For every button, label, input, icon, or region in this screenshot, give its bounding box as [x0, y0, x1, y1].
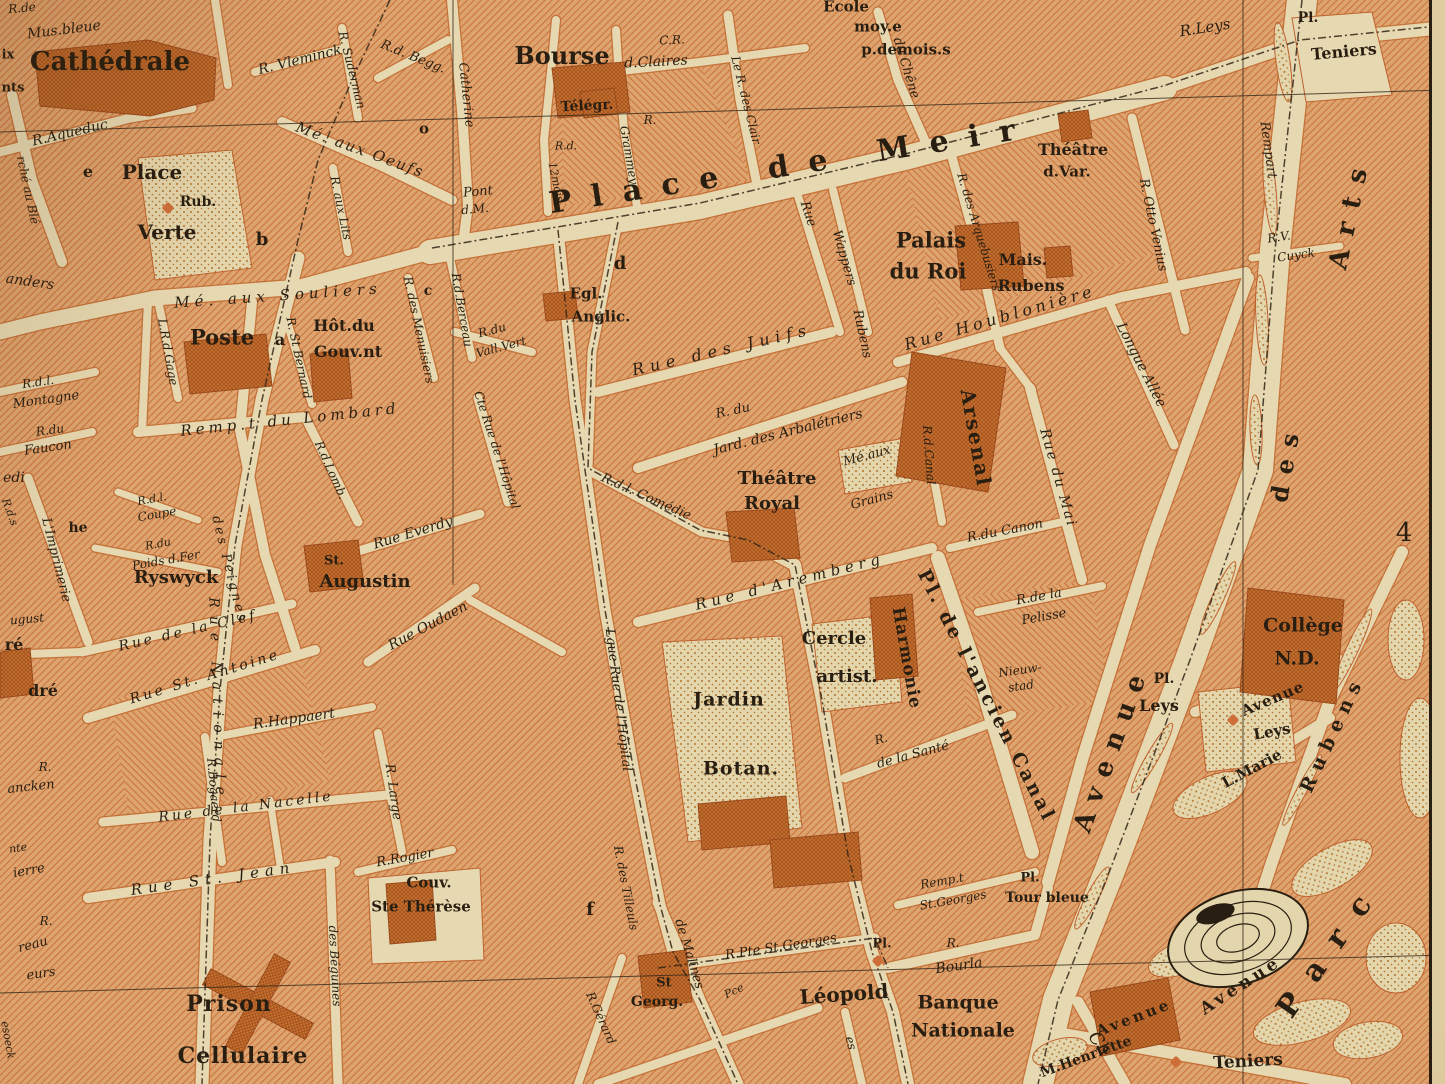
map-label: Bourse — [514, 44, 609, 68]
map-label: Verte — [138, 222, 197, 242]
map-label: R.de — [8, 1, 37, 15]
map-label: Le R. des Clair — [729, 55, 762, 145]
map-label: R.du — [35, 422, 65, 438]
map-label: R.d.Lomb. — [313, 439, 349, 501]
map-label: R. — [40, 915, 53, 927]
map-label: Avenue — [1197, 954, 1284, 1019]
landmark-dot — [1170, 1056, 1183, 1069]
map-label: R.V. — [1267, 229, 1292, 244]
map-label: a — [275, 332, 285, 348]
map-label: Wappers — [830, 229, 858, 288]
map-label: dré — [28, 683, 58, 699]
map-label: R.Aqueduc — [31, 117, 109, 148]
map-label: Jardin — [693, 691, 765, 710]
map-label: Banque — [917, 994, 998, 1013]
map-label: Leys — [1139, 698, 1179, 714]
map-label: Rue des Juifs — [631, 322, 814, 379]
map-label: Remp.t — [919, 871, 964, 890]
map-label: Cuyck — [1277, 246, 1316, 263]
map-label: he — [68, 521, 87, 535]
map-label: Ste Thérèse — [371, 900, 471, 915]
map-label: Gouv.nt — [314, 344, 382, 360]
map-label: Avenue — [1095, 997, 1174, 1039]
map-label: L.Marie — [1220, 747, 1285, 791]
map-label: ix — [2, 49, 15, 62]
map-label: R. St Bernard — [284, 316, 313, 400]
map-label: Hôt.du — [313, 318, 375, 334]
map-label: R. — [39, 761, 52, 773]
map-label: Couv. — [406, 876, 451, 891]
map-label: Mé.aux — [842, 443, 892, 468]
map-label: Grains — [849, 488, 894, 512]
map-label: R.d.s — [0, 497, 20, 527]
map-label: Avenue — [1069, 660, 1154, 835]
map-label: edi — [3, 471, 25, 485]
map-label: Coupe — [137, 505, 177, 524]
map-label: Augustin — [319, 573, 410, 591]
map-label: Ryswyck — [134, 569, 219, 587]
map-label: ancken — [7, 778, 55, 796]
map-label: R. Vleminck — [257, 43, 343, 77]
map-label: Pl. — [1298, 11, 1319, 25]
map-label: R. Suderman — [337, 30, 368, 110]
map-label: es — [843, 1035, 858, 1051]
map-label: e — [83, 164, 93, 180]
map-label: R.du Canon — [966, 517, 1044, 544]
map-label: Pelisse — [1021, 607, 1068, 628]
map-label: Léopold — [799, 981, 889, 1007]
map-label: d.Var. — [1043, 165, 1090, 180]
map-label: moy.e — [854, 20, 902, 35]
map-label: Lgue Rue de l'Hôpital — [603, 628, 633, 772]
map-label: nte — [8, 841, 27, 854]
landmark-dot — [162, 202, 175, 215]
map-label: Rue d'Aremberg — [694, 551, 887, 613]
map-label: Cte Rue de l'Hôpital — [472, 389, 522, 510]
map-label: R.du — [477, 321, 507, 340]
map-label: des Béguines — [327, 925, 343, 1006]
map-label: St — [656, 977, 671, 990]
map-label: Cathédrale — [30, 49, 190, 75]
map-label: R.d.Canal — [921, 425, 937, 485]
map-label: St.Georges — [919, 888, 988, 912]
map-label: 4 — [1396, 520, 1413, 546]
map-label: R. — [873, 732, 889, 747]
map-label: R.de la — [1015, 587, 1063, 608]
map-label: Pce — [723, 982, 746, 1000]
map-label: Faucon — [23, 438, 72, 458]
map-label: Rue St. Jean — [130, 860, 296, 898]
map-label: du Roi — [890, 261, 967, 282]
map-label: Arsenal — [958, 387, 995, 488]
map-label: Catherine — [456, 62, 476, 128]
map-label: Montagne — [12, 389, 80, 411]
map-label: R. Otto Venius — [1137, 177, 1169, 272]
map-label: R. des Tilleuls — [612, 845, 640, 931]
map-label: Remp.t du Lombard — [180, 401, 400, 439]
map-label: R.d.l. — [137, 491, 168, 507]
map-label: Rub. — [180, 195, 216, 209]
map-label: R.Leys — [1179, 17, 1232, 40]
map-label: Théâtre — [738, 470, 817, 488]
map-label: Tour bleue — [1005, 891, 1089, 905]
map-label: R.d.Berceau — [450, 272, 475, 348]
map-label: o — [419, 122, 429, 137]
map-label: Arts — [1325, 152, 1375, 271]
map-label: anders — [5, 272, 55, 293]
map-label: R.Happaert — [252, 706, 336, 731]
map-label: Place — [122, 162, 183, 182]
map-label: Pl. — [1020, 872, 1039, 885]
map-label: R.du — [144, 536, 171, 551]
map-label: b — [256, 231, 269, 249]
map-label: R.Rogier — [375, 847, 434, 870]
map-label: Palais — [896, 230, 966, 251]
map-label: Avenue — [1239, 679, 1306, 719]
map-label: Rue — [798, 200, 818, 229]
map-label: des — [1267, 420, 1305, 504]
map-label: Théâtre — [1038, 142, 1108, 158]
map-label: Rubens — [1297, 672, 1368, 796]
map-label: Prison — [186, 993, 272, 1015]
map-label: Rempart — [1258, 121, 1279, 180]
map-label: c — [424, 284, 433, 298]
map-label: de Malines — [672, 918, 706, 991]
map-label: esoeck — [0, 1020, 17, 1059]
map-label: eurs — [26, 966, 56, 983]
map-label: Longue Allée — [1114, 320, 1169, 409]
map-label: Rue de la Clef — [117, 608, 258, 654]
map-label: ré — [5, 637, 24, 653]
antique-city-map: R.deMus.bleueixCathédralentsR.Aqueducrch… — [0, 0, 1445, 1084]
map-label: R.d.l. Comédie — [599, 471, 693, 522]
map-label: Rubens — [851, 309, 874, 360]
map-label: reau — [17, 935, 49, 955]
map-label: L.R.d.Gage — [156, 318, 180, 387]
map-label: Teniers — [1213, 1052, 1283, 1073]
map-label: Pl. de l'ancien Canal — [914, 567, 1058, 826]
map-label: nts — [2, 82, 25, 95]
map-label: R.d. — [555, 141, 577, 152]
map-label: stad — [1007, 678, 1034, 693]
map-label: Pont — [463, 184, 494, 200]
map-label: Mé. aux Oeufs — [294, 120, 427, 181]
map-label: Cellulaire — [178, 1045, 309, 1067]
map-label: Nationale — [911, 1022, 1015, 1041]
map-label: R.Gérard — [584, 990, 618, 1046]
map-label: Georg. — [631, 995, 683, 1009]
map-label: Télégr. — [560, 98, 613, 115]
map-label: Rue Oudaen — [386, 599, 470, 652]
map-label: Botan. — [703, 760, 779, 779]
map-label: N.D. — [1274, 650, 1319, 669]
map-label: artist. — [816, 668, 877, 686]
map-label: Bourla — [935, 956, 984, 976]
map-label: C.R. — [659, 33, 685, 46]
map-label: Anglic. — [572, 310, 631, 325]
map-label: R.Pte St.Georges — [724, 932, 837, 962]
map-label: Rue Everdy — [372, 514, 455, 551]
map-label: Royal — [744, 495, 800, 513]
map-label: d.Claires — [624, 53, 688, 70]
map-label: R.d. Begg. — [379, 38, 447, 76]
map-label: Cercle — [802, 630, 867, 648]
map-label: Rue de la Nacelle — [158, 789, 335, 824]
map-labels: R.deMus.bleueixCathédralentsR.Aqueducrch… — [0, 0, 1445, 1084]
map-label: Mé. aux Souliers — [174, 281, 382, 310]
map-label: d — [614, 255, 627, 273]
map-label: R. — [644, 114, 657, 126]
map-label: f — [586, 901, 594, 919]
map-label: R.d.l. — [21, 374, 54, 390]
map-label: R. — [947, 937, 960, 949]
map-label: Mais. — [999, 252, 1048, 268]
map-label: Parc — [1272, 873, 1390, 1024]
landmark-dot — [1227, 714, 1240, 727]
map-label: Egl. — [570, 287, 603, 302]
map-label: Nieuw- — [998, 661, 1043, 679]
map-label: R. Large — [383, 763, 404, 821]
map-label: R. du — [715, 401, 752, 421]
map-label: École — [823, 0, 869, 15]
map-label: Rue St. Antoine — [128, 647, 282, 706]
map-label: Harmonie — [889, 606, 924, 710]
map-label: Pl. — [1154, 672, 1175, 686]
map-label: Mus.bleue — [26, 19, 101, 42]
map-label: Poste — [190, 327, 254, 348]
map-label: Rue du Mai — [1037, 427, 1079, 529]
map-label: Teniers — [1311, 41, 1378, 63]
landmark-dot — [872, 955, 885, 968]
map-label: Collège — [1263, 617, 1343, 636]
map-label: ierre — [12, 862, 46, 880]
map-label: St. — [324, 555, 344, 568]
map-label: d.M. — [461, 202, 490, 216]
map-label: rché au Blé — [15, 155, 41, 226]
map-label: Leys — [1252, 721, 1291, 742]
map-label: R. aux Lits — [328, 175, 353, 241]
map-label: ugust — [9, 612, 44, 627]
map-label: Pl. — [872, 938, 891, 951]
